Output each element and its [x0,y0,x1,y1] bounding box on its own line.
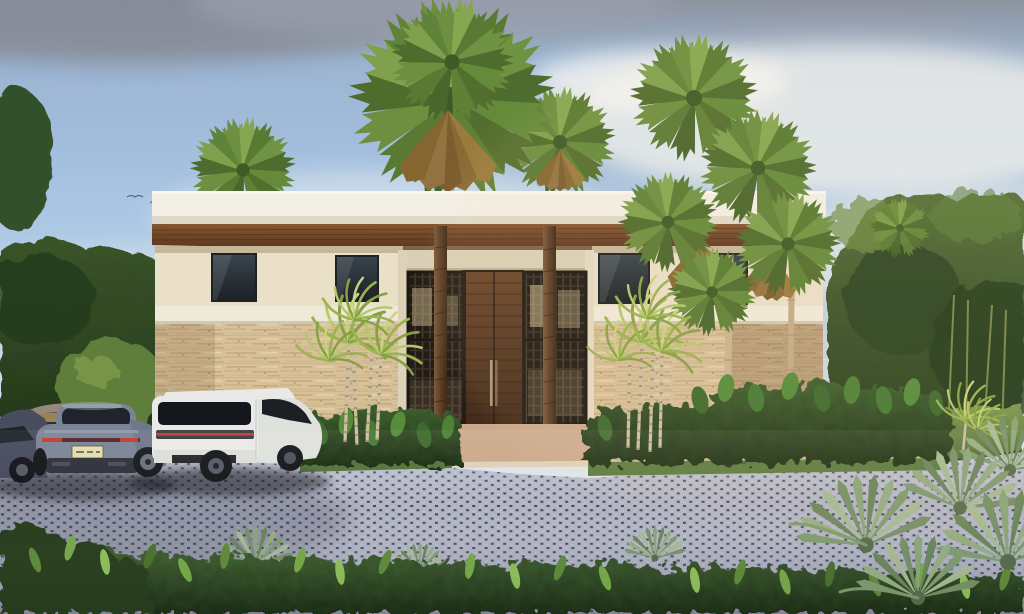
rendering-canvas [0,0,1024,614]
entry-jamb-left [398,250,407,432]
window-1 [211,253,257,302]
villa-rendering [0,0,1024,614]
